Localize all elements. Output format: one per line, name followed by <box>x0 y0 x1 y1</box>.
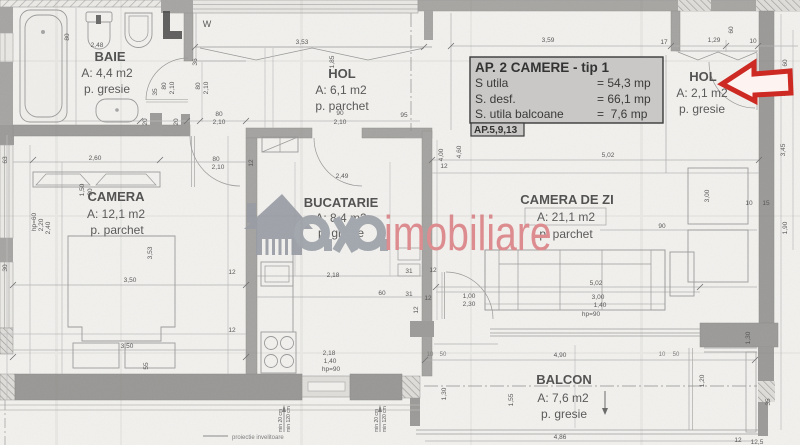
svg-text:AP. 2 CAMERE - tip 1: AP. 2 CAMERE - tip 1 <box>475 60 610 75</box>
svg-text:S utila: S utila <box>475 76 509 90</box>
svg-text:= 66,1 mp: = 66,1 mp <box>597 92 651 106</box>
svg-text:AP.5,9,13: AP.5,9,13 <box>474 125 518 136</box>
svg-text:= 54,3 mp: = 54,3 mp <box>597 76 651 90</box>
svg-text:S. utila balcoane: S. utila balcoane <box>475 107 564 121</box>
svg-text:S. desf.: S. desf. <box>475 92 516 106</box>
svg-text:= 7,6 mp: = 7,6 mp <box>597 107 648 121</box>
